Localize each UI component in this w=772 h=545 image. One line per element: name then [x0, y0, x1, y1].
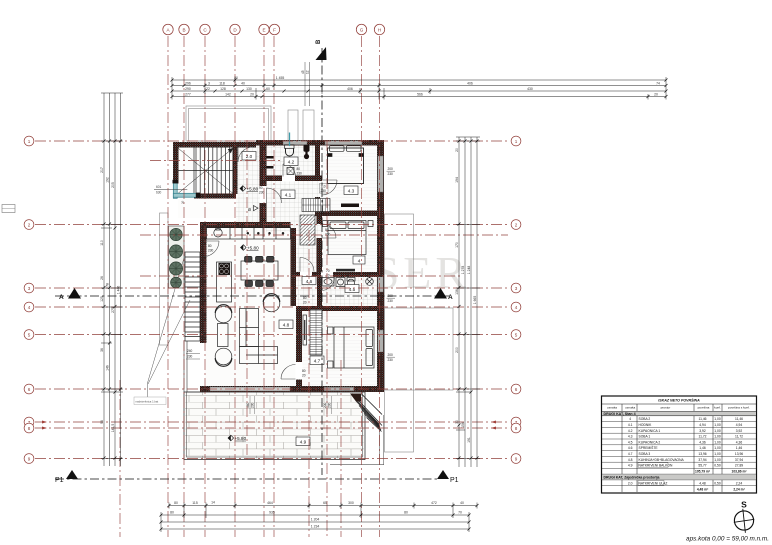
svg-text:430: 430	[527, 87, 533, 91]
svg-text:37,94: 37,94	[698, 458, 706, 462]
svg-text:4,36: 4,36	[736, 440, 743, 444]
svg-text:8: 8	[515, 426, 518, 431]
svg-text:4: 4	[358, 258, 361, 263]
svg-text:oznaka: oznaka	[607, 406, 617, 410]
svg-text:103,86 m²: 103,86 m²	[731, 470, 747, 474]
svg-text:13,96: 13,96	[735, 452, 743, 456]
svg-text:146: 146	[106, 365, 110, 371]
svg-text:406: 406	[347, 87, 353, 91]
svg-text:191: 191	[467, 437, 471, 443]
svg-text:45: 45	[301, 70, 305, 74]
svg-text:3: 3	[208, 82, 210, 86]
svg-text:KUHINJA+DB+BLAGOVAONA: KUHINJA+DB+BLAGOVAONA	[639, 458, 685, 462]
svg-text:4: 4	[515, 305, 518, 310]
svg-text:4.1: 4.1	[285, 193, 292, 198]
svg-text:SOBA 3: SOBA 3	[639, 452, 651, 456]
svg-text:464: 464	[267, 501, 273, 505]
svg-text:4.9: 4.9	[628, 464, 633, 468]
svg-text:1,46: 1,46	[699, 446, 706, 450]
svg-text:80: 80	[170, 511, 174, 515]
svg-text:230: 230	[388, 299, 394, 303]
svg-text:3: 3	[28, 286, 31, 291]
svg-text:4.9: 4.9	[300, 440, 307, 445]
svg-text:4.1: 4.1	[628, 423, 633, 427]
svg-text:1,00: 1,00	[714, 452, 721, 456]
svg-text:+5.80: +5.80	[247, 246, 259, 251]
svg-text:27,89: 27,89	[735, 464, 743, 468]
svg-text:1 278: 1 278	[461, 266, 465, 275]
svg-text:1,00: 1,00	[714, 435, 721, 439]
svg-text:277: 277	[185, 93, 191, 97]
svg-text:26: 26	[100, 276, 104, 280]
svg-text:20: 20	[455, 148, 459, 152]
svg-text:P1: P1	[55, 477, 64, 484]
svg-text:6: 6	[515, 387, 518, 392]
svg-text:12: 12	[306, 70, 310, 74]
svg-text:DRUGI KAT, Stan 4: DRUGI KAT, Stan 4	[604, 412, 636, 416]
svg-text:NATKRIVENI ULAZ: NATKRIVENI ULAZ	[639, 481, 668, 485]
svg-text:0,50: 0,50	[714, 464, 721, 468]
svg-text:4,94: 4,94	[699, 423, 706, 427]
svg-text:1 455: 1 455	[276, 76, 285, 80]
svg-text:2,24: 2,24	[736, 481, 743, 485]
svg-text:130: 130	[246, 87, 252, 91]
svg-text:156: 156	[461, 422, 465, 428]
svg-text:296: 296	[185, 82, 191, 86]
svg-text:217: 217	[100, 167, 104, 173]
svg-text:2: 2	[28, 223, 31, 228]
svg-text:F: F	[273, 28, 276, 33]
svg-text:1 248: 1 248	[467, 266, 471, 275]
svg-text:80: 80	[208, 244, 212, 248]
svg-text:630: 630	[156, 191, 162, 195]
svg-text:275: 275	[111, 307, 115, 313]
svg-text:70: 70	[458, 511, 462, 515]
svg-text:1,00: 1,00	[714, 423, 721, 427]
svg-text:80: 80	[297, 167, 301, 171]
svg-text:B: B	[316, 39, 322, 44]
svg-text:200: 200	[323, 402, 327, 408]
svg-text:9: 9	[28, 457, 31, 462]
svg-text:1,00: 1,00	[714, 417, 721, 421]
svg-text:200: 200	[455, 347, 459, 353]
svg-text:G: G	[360, 28, 364, 33]
svg-text:KUPAONICA 1: KUPAONICA 1	[639, 429, 661, 433]
svg-text:22: 22	[206, 87, 210, 91]
svg-text:3,92: 3,92	[699, 429, 706, 433]
svg-text:230: 230	[297, 172, 303, 176]
svg-text:3,92: 3,92	[736, 429, 743, 433]
svg-text:36: 36	[100, 348, 104, 352]
svg-text:4.8: 4.8	[628, 458, 633, 462]
svg-text:110: 110	[321, 185, 326, 189]
svg-text:230: 230	[388, 358, 394, 362]
svg-text:110: 110	[100, 240, 104, 246]
svg-text:površina: površina	[698, 406, 710, 410]
svg-text:170: 170	[455, 242, 459, 248]
svg-text:P1: P1	[450, 477, 459, 484]
svg-text:1 446: 1 446	[117, 286, 121, 295]
svg-text:40: 40	[241, 82, 245, 86]
svg-text:142: 142	[225, 93, 231, 97]
svg-text:koef.: koef.	[714, 406, 721, 410]
svg-text:128: 128	[220, 87, 226, 91]
svg-text:SPREMIŠTE: SPREMIŠTE	[639, 445, 659, 450]
svg-text:125: 125	[100, 296, 104, 302]
svg-text:1 204: 1 204	[311, 518, 320, 522]
svg-text:230: 230	[328, 402, 332, 408]
svg-text:80: 80	[302, 369, 306, 373]
svg-text:1: 1	[28, 139, 31, 144]
svg-text:11,72: 11,72	[698, 435, 706, 439]
svg-text:20: 20	[326, 274, 330, 278]
svg-text:230: 230	[388, 172, 394, 176]
svg-text:105,79 m²: 105,79 m²	[695, 470, 711, 474]
svg-text:20: 20	[302, 374, 306, 378]
svg-text:90: 90	[259, 186, 263, 190]
svg-text:2: 2	[515, 223, 518, 228]
svg-text:290: 290	[185, 87, 191, 91]
svg-text:60: 60	[266, 87, 270, 91]
svg-text:1,00: 1,00	[714, 429, 721, 433]
svg-text:472: 472	[431, 501, 437, 505]
svg-text:230: 230	[251, 402, 255, 408]
svg-text:13,96: 13,96	[698, 452, 706, 456]
svg-text:80: 80	[174, 501, 178, 505]
svg-text:20: 20	[654, 93, 658, 97]
svg-text:nadstrešnica 1.kat: nadstrešnica 1.kat	[136, 400, 159, 404]
svg-text:200: 200	[388, 353, 394, 357]
svg-text:300: 300	[348, 501, 354, 505]
svg-text:460: 460	[246, 402, 250, 408]
svg-text:4: 4	[28, 305, 31, 310]
svg-text:14: 14	[211, 501, 215, 505]
svg-text:4,36: 4,36	[699, 440, 706, 444]
svg-text:55,77: 55,77	[698, 464, 706, 468]
svg-text:11,72: 11,72	[735, 435, 743, 439]
svg-text:2,24 m²: 2,24 m²	[733, 487, 745, 491]
svg-text:1 665: 1 665	[473, 296, 477, 305]
svg-text:prostor: prostor	[661, 406, 671, 410]
svg-text:A: A	[448, 294, 453, 301]
svg-text:6: 6	[28, 387, 31, 392]
svg-text:a: a	[248, 207, 251, 213]
svg-text:4.7: 4.7	[314, 359, 321, 364]
svg-text:KUPAONICA 2: KUPAONICA 2	[639, 440, 661, 444]
svg-text:115: 115	[192, 501, 198, 505]
svg-text:H: H	[378, 28, 381, 33]
svg-text:30: 30	[455, 420, 459, 424]
svg-text:SOBA 2: SOBA 2	[639, 417, 651, 421]
svg-text:20: 20	[303, 301, 307, 305]
svg-text:136: 136	[455, 289, 459, 295]
svg-text:1,46: 1,46	[736, 446, 743, 450]
svg-text:192: 192	[106, 177, 110, 183]
svg-text:96: 96	[100, 420, 104, 424]
svg-text:A: A	[59, 294, 64, 301]
svg-text:230: 230	[321, 189, 327, 193]
svg-text:DRUGI KAT, Zajednička prostori: DRUGI KAT, Zajednička prostorija	[604, 476, 660, 480]
svg-text:11,46: 11,46	[735, 417, 743, 421]
svg-text:80: 80	[404, 511, 408, 515]
svg-text:194: 194	[455, 177, 459, 183]
svg-text:1: 1	[515, 139, 518, 144]
svg-text:118: 118	[219, 82, 225, 86]
svg-text:1,00: 1,00	[714, 440, 721, 444]
svg-text:2.0: 2.0	[628, 481, 633, 485]
svg-text:4.3: 4.3	[628, 435, 633, 439]
svg-text:601: 601	[156, 185, 162, 189]
svg-text:200: 200	[388, 167, 394, 171]
svg-text:935: 935	[269, 511, 275, 515]
svg-text:230: 230	[187, 355, 193, 359]
svg-text:5: 5	[515, 333, 518, 338]
svg-text:1,00: 1,00	[714, 446, 721, 450]
svg-text:4: 4	[629, 417, 631, 421]
svg-text:NATKRIVENI BALKON: NATKRIVENI BALKON	[639, 464, 673, 468]
svg-text:S: S	[741, 500, 747, 510]
svg-text:4.2: 4.2	[628, 429, 633, 433]
svg-text:4.5: 4.5	[628, 440, 633, 444]
svg-text:4.3: 4.3	[348, 189, 355, 194]
svg-text:65: 65	[323, 501, 327, 505]
svg-text:230: 230	[208, 249, 214, 253]
svg-text:3: 3	[515, 286, 518, 291]
svg-text:20: 20	[250, 93, 254, 97]
svg-text:205: 205	[111, 182, 115, 188]
svg-text:70: 70	[326, 269, 330, 273]
svg-text:74: 74	[656, 82, 660, 86]
svg-text:HODNIK: HODNIK	[639, 423, 653, 427]
svg-text:4.5: 4.5	[349, 287, 356, 292]
svg-text:oznaka: oznaka	[625, 406, 635, 410]
svg-text:5: 5	[28, 333, 31, 338]
svg-text:+5.80: +5.80	[247, 187, 259, 192]
svg-text:4,48: 4,48	[699, 481, 706, 485]
svg-text:141,5: 141,5	[111, 424, 115, 433]
svg-text:8: 8	[28, 426, 31, 431]
svg-text:37,94: 37,94	[735, 458, 743, 462]
svg-text:20: 20	[234, 76, 238, 80]
svg-text:4,48 m²: 4,48 m²	[697, 487, 709, 491]
svg-text:9: 9	[515, 457, 518, 462]
svg-text:4,94: 4,94	[736, 423, 743, 427]
svg-text:+5.80: +5.80	[235, 436, 247, 441]
svg-text:4.6: 4.6	[628, 446, 633, 450]
svg-text:B: B	[182, 28, 185, 33]
svg-text:SOBA 1: SOBA 1	[639, 435, 651, 439]
svg-text:4.2: 4.2	[288, 160, 295, 165]
svg-text:aps.kota 0,00 = 59,00 m.n.m.: aps.kota 0,00 = 59,00 m.n.m.	[686, 536, 769, 543]
svg-text:78: 78	[106, 283, 110, 287]
svg-text:566: 566	[417, 93, 423, 97]
svg-text:1,00: 1,00	[714, 458, 721, 462]
svg-text:površina s koef.: površina s koef.	[728, 406, 750, 410]
svg-text:E: E	[262, 28, 265, 33]
svg-text:0,50: 0,50	[714, 481, 721, 485]
svg-text:240: 240	[187, 349, 193, 353]
svg-text:4.8: 4.8	[283, 323, 290, 328]
svg-text:ISKAZ NETO POVRŠINA: ISKAZ NETO POVRŠINA	[658, 398, 700, 403]
svg-text:406: 406	[467, 82, 473, 86]
svg-text:11,46: 11,46	[698, 417, 706, 421]
svg-text:230: 230	[325, 233, 331, 237]
svg-text:4.7: 4.7	[628, 452, 633, 456]
svg-text:1 234: 1 234	[311, 525, 320, 529]
svg-text:80: 80	[303, 296, 307, 300]
svg-text:40: 40	[460, 501, 464, 505]
